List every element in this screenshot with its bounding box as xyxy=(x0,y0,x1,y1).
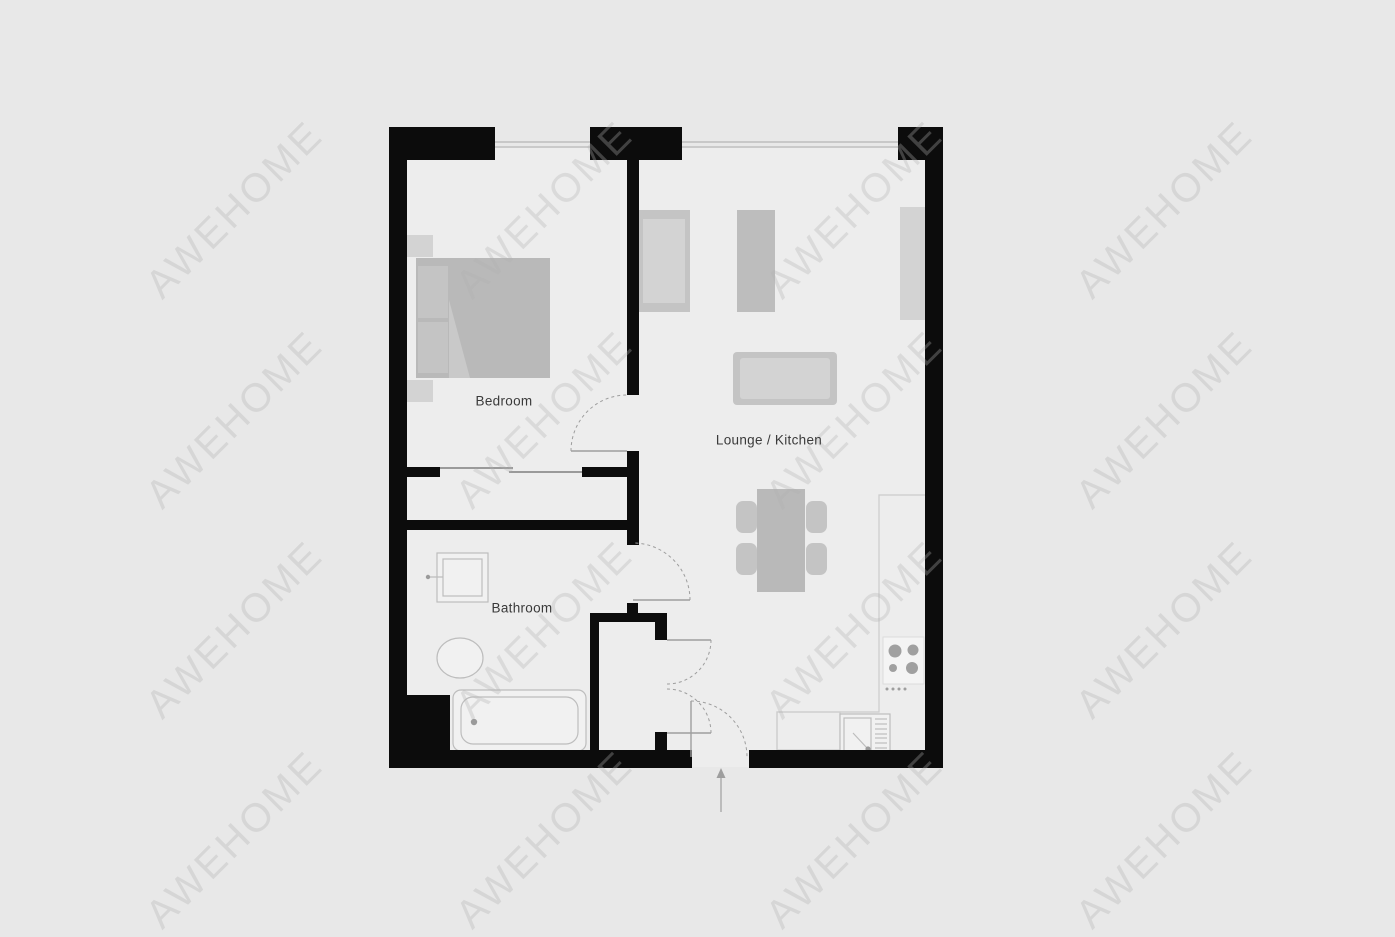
room-label-bedroom: Bedroom xyxy=(476,394,533,409)
hob-knob-3 xyxy=(898,688,901,691)
wall-closet-left xyxy=(590,622,599,757)
armchair-seat xyxy=(643,219,685,303)
wall-block-bottom-left xyxy=(389,695,450,768)
nightstand-top xyxy=(407,235,433,257)
wall-wardrobe-stub-right xyxy=(582,467,627,477)
hob-burner-3 xyxy=(889,664,897,672)
wall-divider-lower xyxy=(627,451,639,545)
wall-closet-top xyxy=(590,613,667,622)
entry-arrow xyxy=(717,768,726,812)
wall-bottom-right xyxy=(749,750,943,768)
floorplan-svg xyxy=(0,0,1395,932)
armchair xyxy=(638,210,690,312)
wall-closet-stub-top xyxy=(655,622,667,640)
room-label-bathroom: Bathroom xyxy=(492,601,553,616)
dining-chair-3 xyxy=(806,501,827,533)
floorplan-page: { "watermark": { "text": "AWEHOME" }, "r… xyxy=(0,0,1395,932)
dining-chair-2 xyxy=(736,543,757,575)
bath-sink-outer xyxy=(437,553,488,602)
toilet xyxy=(437,638,483,678)
kitchen-sink xyxy=(840,714,890,756)
hob-knob-4 xyxy=(904,688,907,691)
bathtub-drain xyxy=(471,719,477,725)
sofa xyxy=(733,352,837,405)
hob-panel xyxy=(883,637,924,684)
sofa-seat xyxy=(740,358,830,399)
bed-pillow-top xyxy=(418,266,448,318)
bed xyxy=(416,258,550,378)
wall-bedroom-divider xyxy=(627,160,639,395)
wall-wardrobe-stub-left xyxy=(407,467,440,477)
dining-table xyxy=(757,489,805,592)
nightstand-bottom xyxy=(407,380,433,402)
hob-burner-1 xyxy=(889,645,902,658)
entry-arrow-head xyxy=(717,768,726,778)
room-label-lounge-kitchen: Lounge / Kitchen xyxy=(716,433,822,448)
hob-knob-1 xyxy=(886,688,889,691)
bath-sink-tap-dot xyxy=(426,575,430,579)
wall-right xyxy=(925,127,943,768)
dining-chair-4 xyxy=(806,543,827,575)
hob-burner-2 xyxy=(908,645,919,656)
dining-chair-1 xyxy=(736,501,757,533)
hob-burner-4 xyxy=(906,662,918,674)
bathtub xyxy=(453,690,586,751)
wall-top-2 xyxy=(590,127,682,160)
tv-unit xyxy=(737,210,775,312)
kitchen-hob xyxy=(883,637,924,691)
sink-cabinet xyxy=(840,714,890,756)
entry-gap-floor xyxy=(692,750,749,767)
wall-closet-stub-bottom xyxy=(655,732,667,757)
tall-cabinet xyxy=(900,207,925,320)
hob-knob-2 xyxy=(892,688,895,691)
wall-top-1 xyxy=(389,127,495,160)
bed-pillow-bottom xyxy=(418,322,448,373)
wall-left xyxy=(389,127,407,768)
wall-bathroom-top xyxy=(407,520,632,530)
